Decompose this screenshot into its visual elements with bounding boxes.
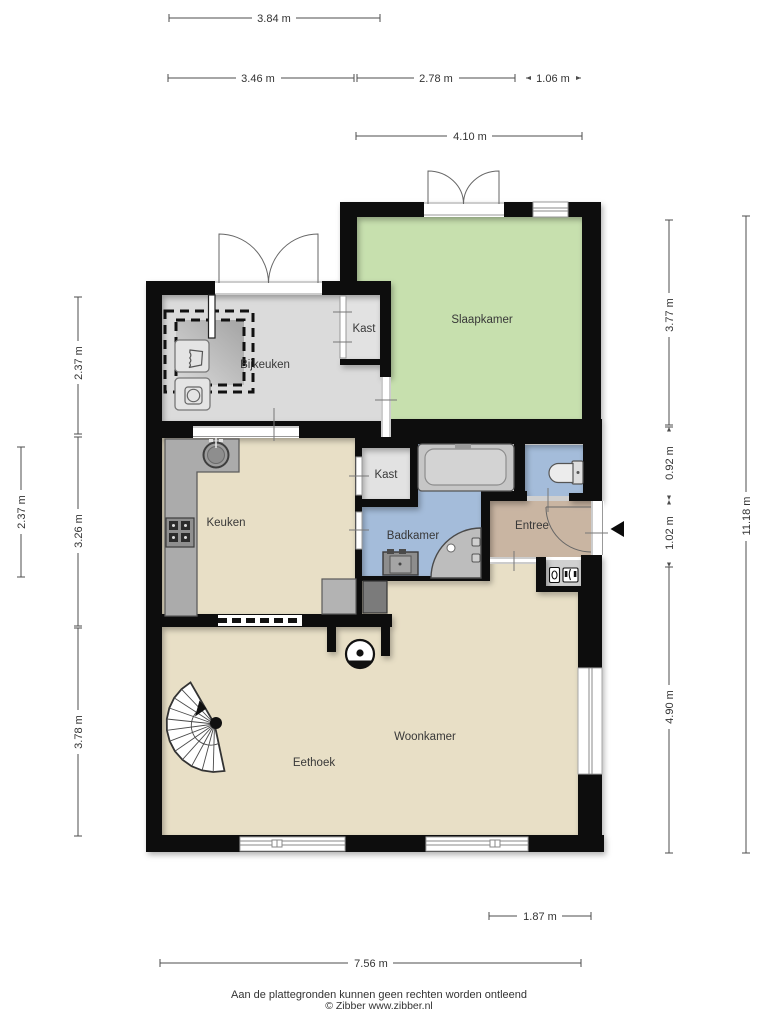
svg-text:Keuken: Keuken [206,517,245,529]
svg-text:0.92 m: 0.92 m [664,446,676,480]
svg-text:Entree: Entree [515,520,549,532]
svg-text:2.37 m: 2.37 m [16,495,28,529]
svg-text:Kast: Kast [352,323,376,335]
svg-text:3.46 m: 3.46 m [241,73,275,85]
svg-text:1.06 m: 1.06 m [536,73,570,85]
svg-text:Eethoek: Eethoek [293,757,335,769]
svg-text:2.78 m: 2.78 m [419,73,453,85]
svg-text:4.10 m: 4.10 m [453,131,487,143]
svg-text:3.77 m: 3.77 m [664,298,676,332]
svg-text:Bijkeuken: Bijkeuken [240,359,290,371]
svg-text:11.18 m: 11.18 m [741,497,753,536]
svg-text:Slaapkamer: Slaapkamer [451,314,513,326]
svg-text:Kast: Kast [374,469,398,481]
svg-text:© Zibber www.zibber.nl: © Zibber www.zibber.nl [325,1000,433,1012]
svg-text:3.26 m: 3.26 m [73,514,85,548]
svg-text:Woonkamer: Woonkamer [394,731,456,743]
svg-text:4.90 m: 4.90 m [664,690,676,724]
svg-text:7.56 m: 7.56 m [354,958,388,970]
svg-text:Badkamer: Badkamer [387,530,440,542]
svg-text:1.87 m: 1.87 m [523,911,557,923]
svg-text:3.84 m: 3.84 m [257,13,291,25]
svg-text:3.78 m: 3.78 m [73,715,85,749]
svg-text:2.37 m: 2.37 m [73,346,85,380]
svg-text:1.02 m: 1.02 m [664,516,676,550]
